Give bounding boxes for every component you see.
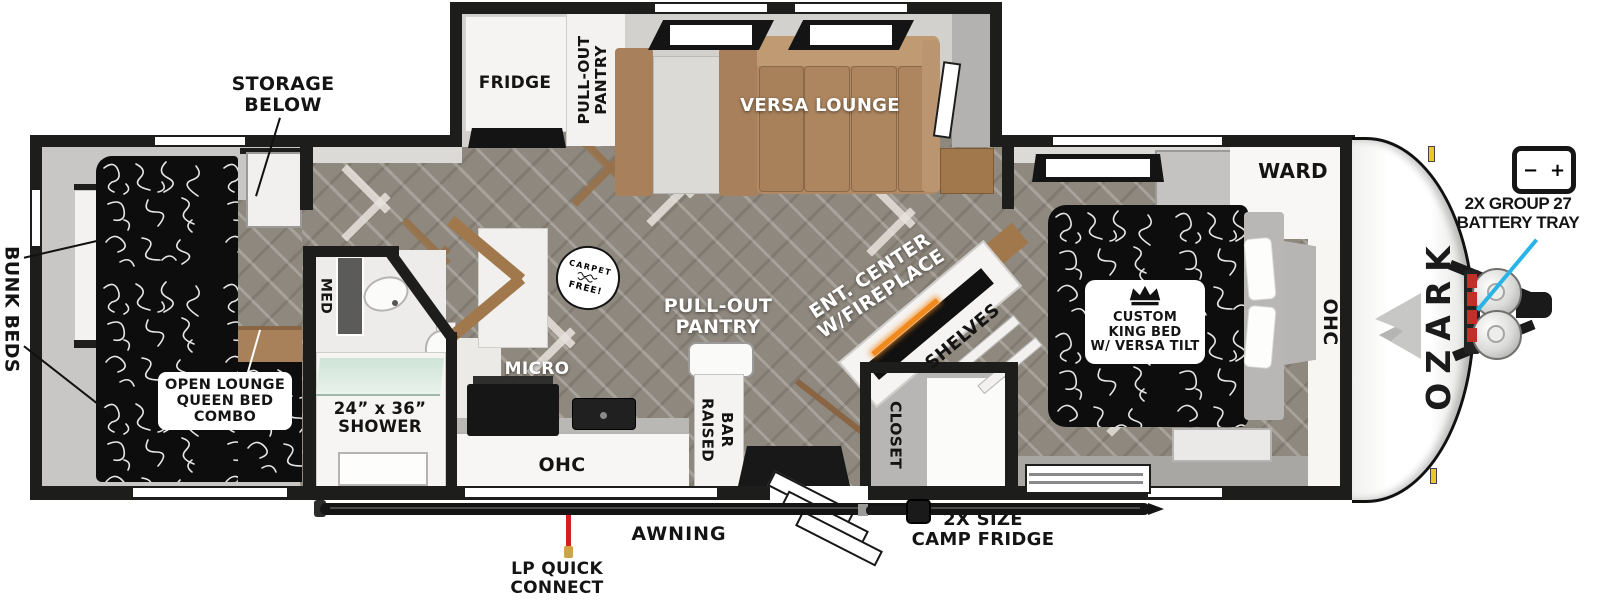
window (465, 488, 717, 497)
wood-wall-panel (940, 148, 994, 194)
window (655, 4, 767, 12)
versa-lounge-label: VERSA LOUNGE (720, 96, 920, 116)
marker-light (1428, 146, 1435, 162)
raised-bar-top (688, 342, 754, 378)
bathroom-wall (446, 332, 457, 488)
closet-wall (1005, 373, 1018, 486)
kitchen-faucet (600, 412, 607, 419)
king-bed-callout: CUSTOM KING BED W/ VERSA TILT (1085, 280, 1205, 364)
storage-cabinet (246, 152, 302, 228)
slideout-wall (450, 2, 462, 147)
battery-tray-cell (1467, 328, 1477, 342)
queen-bed (96, 156, 238, 482)
pantry-slide-label: PULL-OUT PANTRY (576, 20, 614, 140)
lp-quick-connect-fitting (564, 546, 573, 558)
awning-label: AWNING (599, 524, 759, 545)
awning-rail-tip (1148, 503, 1164, 515)
brand-logo: OZARK (1421, 209, 1461, 439)
window (32, 190, 40, 246)
raised-bar-label: RAISED BAR (697, 375, 741, 485)
ward-label: WARD (1243, 160, 1343, 182)
pillow (1243, 237, 1276, 301)
battery-tray-cell (1467, 310, 1477, 324)
bed-foot-bench (1172, 428, 1272, 462)
ohc-kitchen-label: OHC (512, 455, 612, 476)
dinette-booth (719, 48, 759, 196)
king-bed-label: CUSTOM KING BED W/ VERSA TILT (1085, 311, 1205, 355)
storage-below-label: STORAGE BELOW (213, 74, 353, 117)
fridge-front-face (468, 128, 566, 148)
bathroom-wall (303, 246, 316, 488)
propane-tank (1472, 310, 1522, 360)
crown-icon (1128, 285, 1162, 307)
shower-label: 24” x 36” SHOWER (318, 400, 442, 437)
slideout-wall (990, 2, 1002, 147)
bedroom-top-window (1032, 154, 1164, 182)
shower-pan (338, 452, 428, 486)
upper-wall-shadow-left (313, 147, 462, 163)
battery-minus: − (1523, 160, 1538, 181)
med-label: MED (317, 266, 339, 326)
dinette-table (653, 56, 721, 194)
window-glass (1046, 159, 1150, 177)
floorplan-canvas: CUSTOM KING BED W/ VERSA TILT OZARK − + (0, 0, 1600, 609)
window (1053, 137, 1222, 145)
open-lounge-label: OPEN LOUNGE QUEEN BED COMBO (158, 377, 292, 426)
camp-fridge-bay (927, 378, 1005, 486)
bedroom-bottom-window (1025, 464, 1151, 494)
window (795, 4, 907, 12)
micro-label: MICRO (487, 360, 587, 379)
window (1148, 488, 1222, 497)
microwave-range (467, 384, 559, 436)
window (133, 488, 287, 497)
medicine-cabinet (336, 256, 364, 336)
window-blind-slat (1029, 481, 1143, 484)
slideout-window (788, 20, 914, 50)
tank-valve (1487, 325, 1505, 343)
exterior-wall-top-left (30, 135, 462, 147)
sofa-seat-cushion (804, 66, 850, 192)
shower-glass-door (316, 358, 444, 396)
battery-tray-cell (1467, 292, 1477, 306)
sofa-chaise (759, 66, 804, 192)
battery-tray-cell (1467, 274, 1477, 288)
window (155, 137, 245, 145)
camp-fridge-label: 2X SIZE CAMP FRIDGE (883, 510, 1083, 550)
dinette-booth (615, 48, 653, 196)
window-blind-slat (1029, 473, 1143, 476)
window-glass (670, 25, 752, 45)
battery-plus: + (1550, 160, 1565, 181)
queen-bed-fabric (96, 156, 238, 482)
bunk-room-wall (300, 147, 313, 210)
marker-light (1430, 468, 1437, 484)
fridge-label: FRIDGE (465, 74, 565, 93)
sink-faucet (392, 300, 398, 306)
ohc-bedroom-label: OHC (1316, 277, 1340, 367)
bunk-beds-label: BUNK BEDS (0, 234, 26, 384)
sofa-seat-cushion (851, 66, 897, 192)
bedroom-partition-wall (1002, 147, 1014, 209)
battery-tray-label: 2X GROUP 27 BATTERY TRAY (1438, 194, 1598, 232)
slideout-window (648, 20, 774, 50)
pillow (1243, 305, 1276, 369)
closet-wall (860, 373, 871, 486)
lp-quick-connect-line (566, 515, 571, 547)
closet-label: CLOSET (886, 388, 908, 483)
lp-quick-connect-label: LP QUICK CONNECT (487, 560, 627, 598)
battery-icon: − + (1512, 146, 1576, 194)
window-glass (810, 25, 892, 45)
